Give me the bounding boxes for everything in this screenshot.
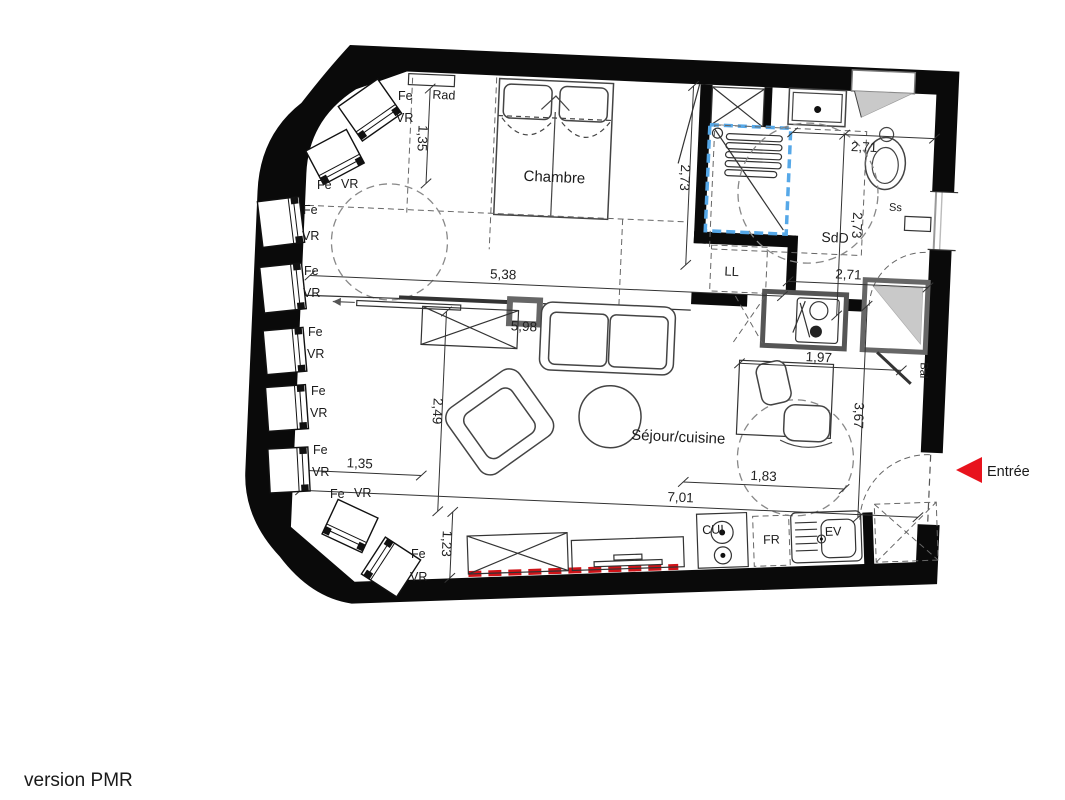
svg-text:1,35: 1,35	[346, 455, 373, 471]
entry-label: Entrée	[987, 464, 1030, 480]
svg-text:Fe: Fe	[308, 325, 323, 339]
svg-text:5,38: 5,38	[490, 266, 517, 282]
fridge-label: FR	[763, 532, 780, 547]
svg-text:VR: VR	[310, 406, 327, 420]
window	[257, 197, 304, 248]
svg-text:VR: VR	[303, 286, 320, 300]
entry-arrow-icon	[956, 457, 982, 483]
svg-text:1,35: 1,35	[414, 125, 430, 152]
svg-text:2,73: 2,73	[849, 212, 865, 239]
svg-text:VR: VR	[396, 111, 413, 125]
sofa	[539, 302, 676, 376]
svg-text:2,73: 2,73	[677, 164, 693, 191]
svg-text:7,01: 7,01	[667, 489, 694, 505]
svg-text:2,71: 2,71	[835, 266, 862, 282]
svg-text:Fe: Fe	[411, 547, 426, 561]
svg-text:Fe: Fe	[303, 203, 318, 217]
kitchen-sink-label: EV	[825, 524, 843, 539]
window	[268, 447, 310, 493]
svg-text:1,23: 1,23	[439, 530, 455, 557]
svg-text:VR: VR	[341, 177, 358, 191]
towel-dryer-label: Ss	[889, 202, 903, 215]
plan-caption: version PMR	[24, 770, 133, 791]
radiator-label: Rad	[432, 88, 456, 103]
svg-text:2,49: 2,49	[430, 398, 446, 425]
svg-text:VR: VR	[307, 347, 324, 361]
window	[266, 385, 309, 432]
washbasin	[788, 88, 847, 126]
cooktop-label: CUI	[702, 522, 724, 537]
svg-text:1,83: 1,83	[750, 468, 777, 484]
svg-text:Fe: Fe	[311, 384, 326, 398]
svg-text:VR: VR	[354, 486, 371, 500]
wall-kitchen-stub	[863, 512, 875, 564]
balcony-label: Bal	[917, 362, 930, 378]
svg-text:Fe: Fe	[313, 443, 328, 457]
entry-marker: Entrée	[956, 457, 1030, 483]
dim-sliding-door: 5,98	[510, 318, 537, 334]
shower	[705, 125, 791, 234]
bed	[494, 79, 614, 220]
svg-text:Fe: Fe	[304, 264, 319, 278]
svg-text:Fe: Fe	[398, 89, 413, 103]
svg-text:Fe: Fe	[317, 178, 332, 192]
washing-machine-label: LL	[724, 264, 739, 280]
svg-text:VR: VR	[302, 229, 319, 243]
svg-text:2,71: 2,71	[851, 139, 878, 155]
bedroom-label: Chambre	[523, 168, 585, 188]
svg-text:Fe: Fe	[330, 487, 345, 501]
svg-text:VR: VR	[312, 465, 329, 479]
window	[260, 263, 307, 313]
svg-text:1,97: 1,97	[805, 349, 832, 365]
svg-text:3,67: 3,67	[851, 402, 867, 429]
window	[263, 327, 307, 374]
svg-text:VR: VR	[410, 570, 427, 584]
shower-room-label: SdD	[821, 229, 849, 246]
sdd-wall-window	[928, 191, 959, 250]
floor-plan-canvas: Bal Rad Chambre	[0, 0, 1065, 800]
